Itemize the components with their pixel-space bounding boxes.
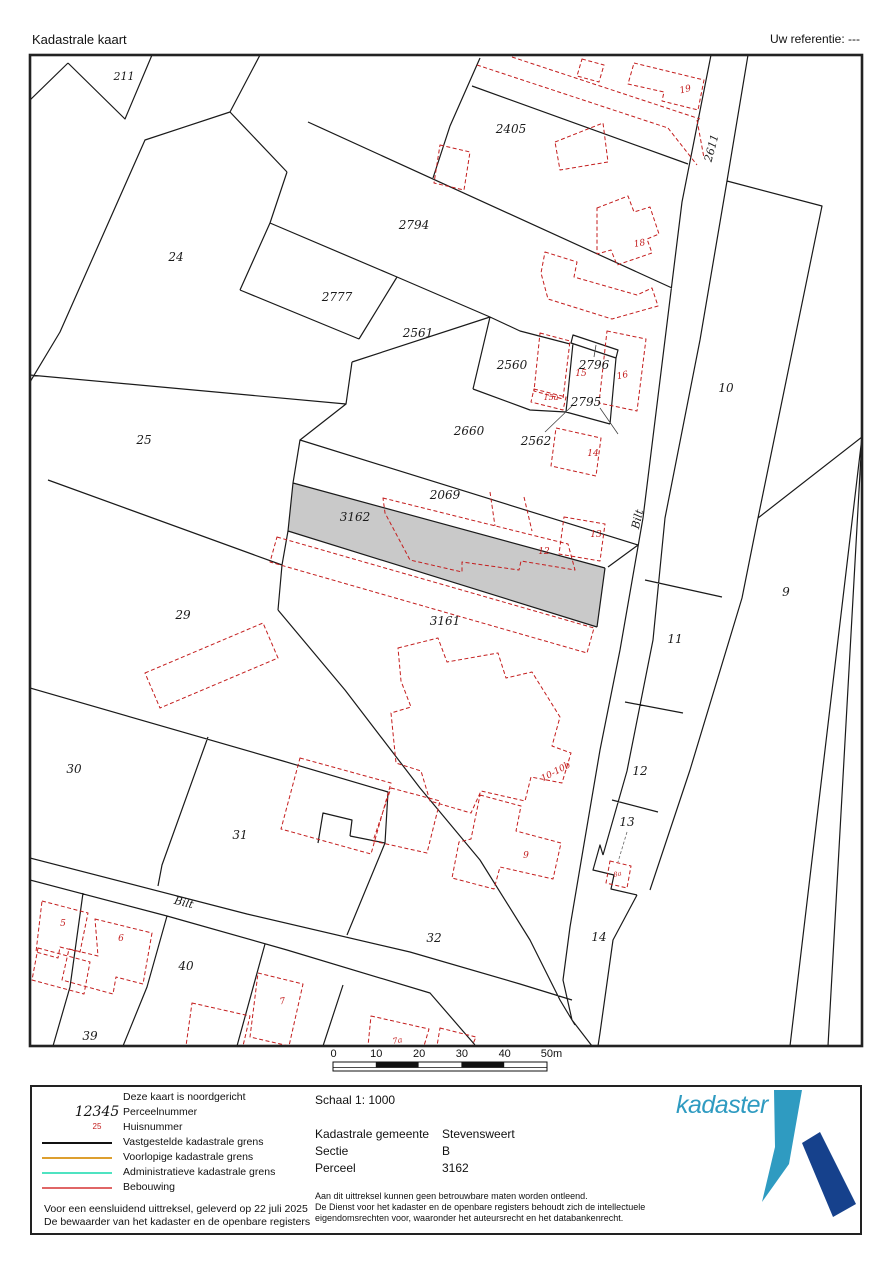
footer: Deze kaart is noordgericht 12345Perceeln… xyxy=(30,1085,862,1235)
detail-label: Sectie xyxy=(315,1144,348,1158)
parcel-label-3161: 3161 xyxy=(430,614,461,628)
parcel-label-211: 211 xyxy=(113,70,135,83)
parcel-label-2560: 2560 xyxy=(496,358,528,372)
parcel-label-13: 13 xyxy=(619,815,635,829)
scale-tick-2: 20 xyxy=(413,1048,425,1060)
logo-pen-light xyxy=(762,1090,802,1202)
legend-swatch: 25 xyxy=(72,1122,122,1131)
parcel-label-39: 39 xyxy=(82,1029,98,1043)
logo-stroke-dark xyxy=(802,1132,856,1217)
north-note: Deze kaart is noordgericht xyxy=(123,1091,246,1103)
footnote-1: Voor een eensluidend uittreksel, gelever… xyxy=(44,1203,308,1215)
parcel-label-13: 13 xyxy=(590,530,602,540)
parcel-label-40: 40 xyxy=(177,959,194,973)
legend-label: Vastgestelde kadastrale grens xyxy=(123,1136,263,1148)
disclaimer-line-2: eigendomsrechten voor, waaronder het aut… xyxy=(315,1213,665,1224)
legend-label: Perceelnummer xyxy=(123,1106,197,1118)
detail-value: B xyxy=(442,1144,450,1158)
parcel-label-2561: 2561 xyxy=(402,326,434,340)
legend-swatch xyxy=(42,1187,112,1189)
logo-mark xyxy=(732,1087,872,1233)
parcel-label-5: 5 xyxy=(60,919,66,929)
scale-tick-1: 10 xyxy=(370,1048,382,1060)
legend-swatch xyxy=(42,1157,112,1159)
parcel-label-2660: 2660 xyxy=(453,424,485,438)
parcel-label-9: 9 xyxy=(523,851,529,861)
legend-label: Administratieve kadastrale grens xyxy=(123,1166,275,1178)
parcel-label-31: 31 xyxy=(232,828,247,842)
parcel-label-3162: 3162 xyxy=(340,510,371,524)
scale-tick-4: 40 xyxy=(499,1048,511,1060)
legend-swatch: 12345 xyxy=(72,1104,122,1120)
parcel-label-18: 18 xyxy=(633,238,646,250)
disclaimer: Aan dit uittreksel kunnen geen betrouwba… xyxy=(315,1191,665,1224)
parcel-label-30: 30 xyxy=(66,762,82,776)
disclaimer-line-1: De Dienst voor het kadaster en de openba… xyxy=(315,1202,665,1213)
parcel-label-2405: 2405 xyxy=(495,122,527,136)
parcel-label-12: 12 xyxy=(632,764,647,778)
parcel-label-14: 14 xyxy=(591,930,606,944)
parcel-label-14: 14 xyxy=(587,449,599,459)
parcel-label-9: 9 xyxy=(782,585,790,599)
parcel-label-24: 24 xyxy=(167,250,183,264)
legend: Deze kaart is noordgericht 12345Perceeln… xyxy=(32,1087,312,1233)
legend-label: Bebouwing xyxy=(123,1181,175,1193)
disclaimer-line-0: Aan dit uittreksel kunnen geen betrouwba… xyxy=(315,1191,665,1202)
parcel-label-12: 12 xyxy=(538,547,550,557)
parcel-label-2795: 2795 xyxy=(570,395,602,409)
parcel-label-29: 29 xyxy=(174,608,191,622)
detail-label: Kadastrale gemeente xyxy=(315,1127,429,1141)
legend-label: Huisnummer xyxy=(123,1121,183,1133)
parcel-label-11: 11 xyxy=(667,632,682,646)
parcel-label-25: 25 xyxy=(135,433,151,447)
cadastral-map: 2112427942777240525612560279627952660256… xyxy=(0,0,892,1263)
parcel-label-2562: 2562 xyxy=(520,434,552,448)
extract-details: Schaal 1: 1000 Kadastrale gemeenteSteven… xyxy=(315,1087,675,1233)
scale-bar-segment xyxy=(461,1062,504,1068)
scale-tick-5: 50m xyxy=(541,1048,562,1060)
parcel-label-6: 6 xyxy=(118,934,124,944)
parcel-label-2777: 2777 xyxy=(321,290,353,304)
detail-value: 3162 xyxy=(442,1161,469,1175)
parcel-label-10: 10 xyxy=(718,381,734,395)
footnote-2: De bewaarder van het kadaster en de open… xyxy=(44,1216,310,1228)
parcel-label-2794: 2794 xyxy=(398,218,430,232)
legend-swatch xyxy=(42,1172,112,1174)
kadaster-logo: kadaster xyxy=(672,1087,860,1233)
scale-tick-3: 30 xyxy=(456,1048,468,1060)
parcel-label-32: 32 xyxy=(426,931,441,945)
kadaster-extract-page: Kadastrale kaart Uw referentie: --- 2112… xyxy=(0,0,892,1263)
detail-label: Perceel xyxy=(315,1161,356,1175)
scale-bar: 01020304050m xyxy=(330,1048,562,1071)
parcel-label-15a: 15a xyxy=(544,393,559,402)
legend-label: Voorlopige kadastrale grens xyxy=(123,1151,253,1163)
scale-bar-segment xyxy=(376,1062,419,1068)
parcel-label-2069: 2069 xyxy=(429,488,461,502)
parcel-label-15: 15 xyxy=(575,369,587,379)
legend-swatch xyxy=(42,1142,112,1144)
scale-tick-0: 0 xyxy=(330,1048,336,1060)
scale-label: Schaal 1: 1000 xyxy=(315,1093,395,1107)
detail-value: Stevensweert xyxy=(442,1127,515,1141)
